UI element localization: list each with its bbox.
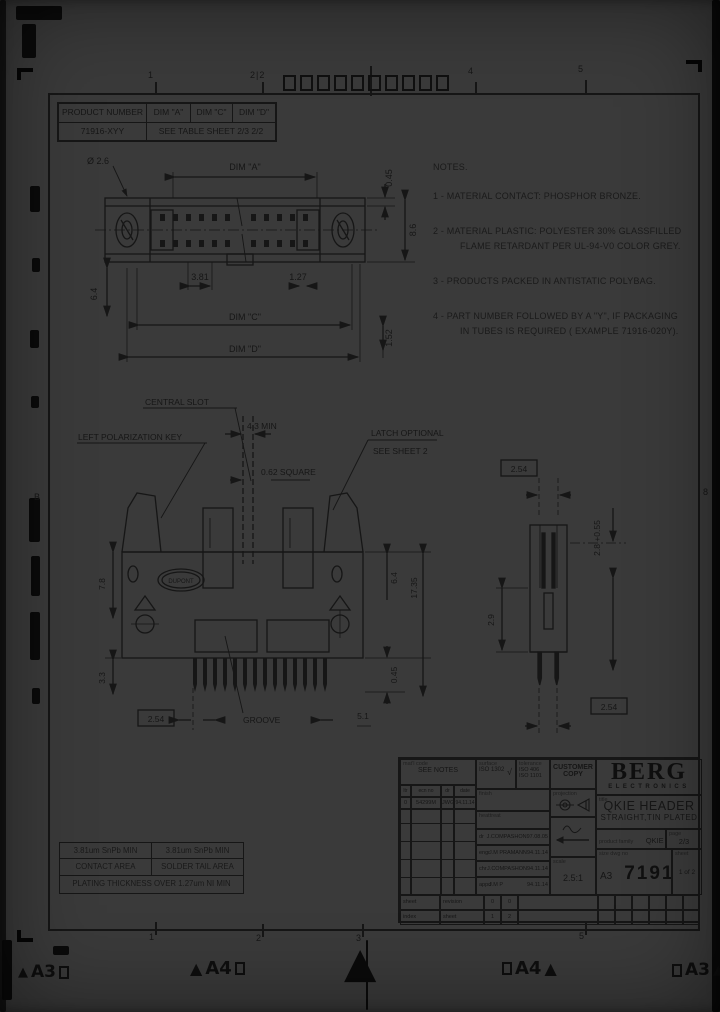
sig-date: 94.11.14 [527, 846, 549, 860]
square-icon [59, 966, 69, 979]
dim-381: 3.81 [191, 272, 209, 282]
ecn-header: ltr [400, 785, 411, 797]
zone-label: 4 [468, 66, 474, 76]
dim-64: 6.4 [89, 288, 99, 301]
plating-cell: 3.81um SnPb MIN [60, 843, 152, 858]
dim-254-top: 2.54 [511, 464, 528, 474]
front-view-drawing: CENTRAL SLOT LEFT POLARIZATION KEY 4.3 M… [75, 388, 445, 738]
cell [615, 910, 632, 925]
zone-label: 1 [148, 70, 154, 80]
ecn-no: 54299M [411, 797, 441, 809]
surface-label: surface [477, 760, 515, 767]
dim-78: 7.8 [97, 578, 107, 590]
cell [400, 859, 476, 860]
col-header: DIM "C" [191, 104, 233, 122]
artifact [32, 688, 40, 704]
projection-label: projection [551, 790, 595, 797]
notes-title: NOTES. [433, 160, 701, 175]
paper-size-a4-left: A4 [205, 958, 231, 979]
zone-tick [362, 924, 364, 937]
note-3: 3 - PRODUCTS PACKED IN ANTISTATIC POLYBA… [433, 274, 701, 289]
center-fold-triangle: ▲ [344, 942, 376, 984]
dupont-logo: DUPONT [168, 579, 194, 585]
sheet-value: 1 of 2 [673, 869, 701, 876]
cell [441, 809, 454, 895]
plating-cell: CONTACT AREA [60, 859, 152, 875]
cell [683, 910, 700, 925]
dim-d: DIM "D" [229, 344, 261, 354]
dim-33: 3.3 [97, 672, 107, 684]
sprocket-hole [334, 75, 347, 91]
title-label: title [597, 796, 608, 803]
label-polarization-key: LEFT POLARIZATION KEY [78, 432, 182, 442]
zone-tick [475, 82, 477, 95]
matl-code-label: mat'l code [401, 760, 475, 767]
artifact [31, 396, 39, 408]
sprocket-hole [419, 75, 432, 91]
calibration-strip: ▲ A3 ▲ A4 ▲ +-imtec A4 ▲ A3 ▲ [0, 940, 720, 1012]
cell [632, 895, 649, 910]
dim-51: 5.1 [357, 711, 369, 721]
cell [615, 895, 632, 910]
dim-1735: 17.35 [409, 577, 419, 599]
triangle-icon: ▲ [18, 966, 28, 979]
zone-label: 8 [703, 487, 709, 497]
col-header: DIM "A" [147, 104, 191, 122]
note-2: 2 - MATERIAL PLASTIC: POLYESTER 30% GLAS… [433, 224, 701, 239]
plating-table: 3.81um SnPb MIN 3.81um SnPb MIN CONTACT … [59, 842, 244, 894]
sig-name: J.COMPASHON [487, 862, 527, 876]
note-4-cont: IN TUBES IS REQUIRED ( EXAMPLE 71916-020… [433, 324, 701, 339]
plating-footer: PLATING THICKNESS OVER 1.27um NI MIN [59, 876, 244, 894]
family-label: product family [597, 838, 633, 845]
ecn-header: dr [441, 785, 454, 797]
sig-role: chr [477, 862, 487, 876]
dim-254-bottom: 2.54 [601, 702, 618, 712]
dim-127: 1.27 [289, 272, 307, 282]
paper-size-a3-right: A3 [685, 960, 710, 980]
size-dwg-label: size dwg no [597, 850, 671, 857]
dim-045: 0.45 [389, 666, 399, 683]
berg-sub: ELECTRONICS [597, 784, 701, 790]
artifact [29, 498, 40, 542]
cell [598, 910, 615, 925]
footer-label: sheet [440, 910, 484, 925]
customer-copy-1: CUSTOMER [551, 764, 595, 771]
paper-size-a4-right: A4 [515, 958, 541, 979]
footer-label: index [400, 910, 440, 925]
scale-label: scale [551, 858, 595, 865]
square-icon [502, 962, 512, 975]
product-number-table: PRODUCT NUMBER DIM "A" DIM "C" DIM "D" 7… [57, 102, 277, 142]
sig-role: appd [477, 878, 489, 894]
product-number: 71916-XYY [59, 123, 147, 140]
label-groove: GROOVE [243, 715, 281, 725]
note-4: 4 - PART NUMBER FOLLOWED BY A "Y", IF PA… [433, 309, 701, 324]
artifact [30, 186, 40, 212]
square-icon [235, 962, 245, 975]
zone-tick [262, 924, 264, 937]
cell [518, 910, 598, 925]
zone-label: 5 [578, 64, 584, 74]
artifact [30, 330, 39, 348]
cell [400, 823, 476, 824]
sig-name: J.M PRAMANN [489, 846, 527, 860]
footer-value: 1 [484, 910, 501, 925]
cell [666, 910, 683, 925]
family-value: QKIE [646, 836, 664, 845]
berg-logo: BERG [597, 760, 701, 784]
artifact [22, 24, 36, 58]
heattreat-label: heattreat [477, 812, 549, 819]
dim-045: 0.45 [384, 169, 394, 187]
cell [649, 910, 666, 925]
sprocket-hole [436, 75, 449, 91]
zone-tick [155, 82, 157, 95]
col-header: DIM "D" [233, 104, 275, 122]
sprocket-hole [300, 75, 313, 91]
zone-label: B [34, 492, 41, 502]
top-view-drawing: Ø 2.6 DIM "A" 0.45 8.6 1.52 6.4 3.81 1.2… [85, 148, 430, 370]
cell [518, 895, 598, 910]
side-view-drawing: 2.54 2.8 +0.55 2.9 2.54 [478, 448, 658, 743]
sprocket-hole [368, 75, 381, 91]
sprocket-hole [317, 75, 330, 91]
sprocket-hole [385, 75, 398, 91]
artifact [712, 0, 720, 1012]
table-ref: SEE TABLE SHEET 2/3 2/2 [147, 123, 275, 140]
title-block: mat'l code SEE NOTES ltr ecn no dr date … [398, 757, 700, 923]
cell [598, 895, 615, 910]
artifact [16, 6, 62, 20]
col-header: PRODUCT NUMBER [59, 104, 147, 122]
approval-stamp-icon [551, 818, 595, 854]
ecn-date: 94.11.14 [454, 797, 476, 809]
dim-a: DIM "A" [229, 162, 260, 172]
zone-tick [585, 80, 587, 93]
label-latch-1: LATCH OPTIONAL [371, 428, 444, 438]
square-icon [672, 964, 682, 977]
note-2-cont: FLAME RETARDANT PER UL-94-V0 COLOR GREY. [433, 239, 701, 254]
zone-tick [155, 922, 157, 935]
crop-mark [17, 68, 33, 80]
sig-role: dr [477, 830, 487, 844]
dim-062: 0.62 SQUARE [261, 467, 316, 477]
footer-label: revision [440, 895, 484, 910]
dim-dia: Ø 2.6 [87, 156, 109, 166]
zone-label: 2|2 [250, 70, 265, 80]
triangle-icon: ▲ [544, 961, 556, 977]
page-value: 2/3 [667, 837, 701, 846]
sheet-label: sheet [673, 850, 701, 857]
note-1: 1 - MATERIAL CONTACT: PHOSPHOR BRONZE. [433, 189, 701, 204]
ecn-header: ecn no [411, 785, 441, 797]
dim-c: DIM "C" [229, 312, 261, 322]
cell [649, 895, 666, 910]
dwg-number: 71916 [624, 863, 672, 885]
artifact [30, 612, 40, 660]
size-value: A3 [600, 871, 612, 882]
triangle-icon: ▲ [713, 963, 720, 977]
crop-mark [686, 60, 702, 72]
dim-28: 2.8 +0.55 [592, 520, 602, 556]
dim-152: 1.52 [384, 329, 394, 347]
notes-section: NOTES. 1 - MATERIAL CONTACT: PHOSPHOR BR… [433, 160, 701, 339]
page-label: page [667, 830, 701, 837]
cell [400, 841, 476, 842]
sig-date: 94.11.14 [527, 862, 549, 876]
finish-label: finish [477, 790, 549, 797]
plating-cell: SOLDER TAIL AREA [152, 859, 243, 875]
footer-value: 0 [484, 895, 501, 910]
cell [411, 809, 441, 895]
sig-date: 97.08.05 [527, 830, 549, 844]
artifact [32, 258, 40, 272]
paper-size-a3-left: A3 [31, 962, 56, 982]
tolerance-label: tolerance [517, 760, 549, 767]
cell [683, 895, 700, 910]
dim-43min: 4.3 MIN [247, 421, 277, 431]
drawing-title: QKIE HEADER [597, 799, 701, 813]
artifact [31, 556, 40, 596]
footer-label: sheet [400, 895, 440, 910]
dim-64: 6.4 [389, 572, 399, 584]
ecn-ltr: 0 [400, 797, 411, 809]
sig-role: engr [477, 846, 489, 860]
ecn-header: date [454, 785, 476, 797]
ecn-dr: JWG [441, 797, 454, 809]
label-latch-2: SEE SHEET 2 [373, 446, 428, 456]
projection-symbol-icon [553, 797, 593, 813]
footer-value: 2 [501, 910, 518, 925]
plating-cell: 3.81um SnPb MIN [152, 843, 243, 858]
sprocket-hole [351, 75, 364, 91]
dim-86: 8.6 [408, 224, 418, 237]
cell [400, 809, 411, 895]
artifact [366, 940, 368, 1010]
drawing-sheet: 1 2|2 4 5 1 2 3 5 B 8 PRODUCT NUMBER DIM… [0, 0, 720, 1012]
triangle-icon: ▲ [190, 961, 202, 977]
cell [454, 809, 476, 895]
dim-254: 2.54 [148, 714, 165, 724]
sig-name: J.COMPASHON [487, 830, 527, 844]
customer-copy-2: COPY [551, 771, 595, 778]
drawing-subtitle: STRAIGHT,TIN PLATED [597, 813, 701, 822]
matl-code-value: SEE NOTES [401, 767, 475, 774]
sprocket-hole [283, 75, 296, 91]
sig-name: J.M P [489, 878, 527, 894]
sig-date: 94.11.14 [527, 878, 549, 894]
cell [632, 910, 649, 925]
sprocket-strip [283, 75, 449, 91]
dim-29: 2.9 [486, 614, 496, 626]
label-central-slot: CENTRAL SLOT [145, 397, 209, 407]
footer-value: 0 [501, 895, 518, 910]
tolerance-value-2: ISO 1101 [517, 773, 549, 779]
scale-value: 2.5:1 [551, 873, 595, 883]
sprocket-hole [402, 75, 415, 91]
artifact [0, 0, 6, 1012]
cell [666, 895, 683, 910]
triangle-icon: ▲ [344, 942, 376, 984]
cell [400, 877, 476, 878]
zone-tick [262, 82, 264, 95]
